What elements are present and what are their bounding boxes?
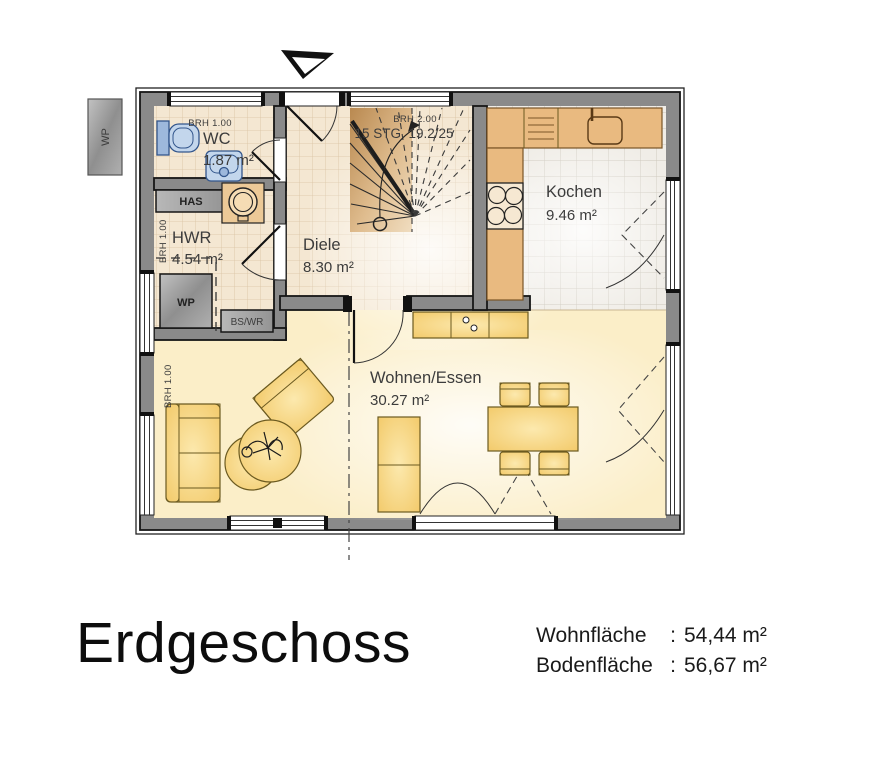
kochen-label: Kochen xyxy=(546,183,602,201)
stairs-label: 15 STG. 19.2/25 xyxy=(354,126,453,141)
hwr-label: HWR xyxy=(172,229,211,247)
window-wohnen-left xyxy=(140,412,154,515)
floorplan-page: WC 1.87 m² BRH 1.00 HWR 4.54 m² BRH 1.00… xyxy=(0,0,869,759)
wc-label: WC xyxy=(203,130,231,148)
cooktop xyxy=(487,183,523,229)
stairs-window-note: BRH 2.00 xyxy=(393,114,437,125)
hwr-area: 4.54 m² xyxy=(172,251,223,268)
has-label: HAS xyxy=(179,196,202,208)
stat-value: 56,67 m² xyxy=(684,651,767,681)
floor-plan-svg: WC 1.87 m² BRH 1.00 HWR 4.54 m² BRH 1.00… xyxy=(0,0,869,596)
dining-chair xyxy=(500,383,530,406)
heat-pump-indoor-label: WP xyxy=(177,297,195,309)
kochen-highlight xyxy=(500,150,666,310)
shelf xyxy=(378,417,420,512)
wohnen-window-note: BRH 1.00 xyxy=(163,364,174,408)
stat-separator: : xyxy=(662,621,684,651)
floor-title: Erdgeschoss xyxy=(76,610,411,676)
diele-area: 8.30 m² xyxy=(303,259,354,276)
window-stairs-top xyxy=(347,92,453,106)
stat-label: Bodenfläche xyxy=(536,651,662,681)
stat-value: 54,44 m² xyxy=(684,621,767,651)
wc-area: 1.87 m² xyxy=(203,152,254,169)
washing-machine xyxy=(222,183,264,223)
stat-label: Wohnfläche xyxy=(536,621,662,651)
wohnen-label: Wohnen/Essen xyxy=(370,369,482,387)
wc-window-note: BRH 1.00 xyxy=(188,118,232,129)
wohnen-area: 30.27 m² xyxy=(370,392,429,409)
window-hwr-left xyxy=(140,270,154,356)
bswr-label: BS/WR xyxy=(231,317,264,328)
sofa xyxy=(166,404,220,502)
hwr-window-note: BRH 1.00 xyxy=(158,219,169,263)
sideboard xyxy=(413,312,528,338)
stat-separator: : xyxy=(662,651,684,681)
window-wohnen-bottom xyxy=(227,516,328,530)
dining-chair xyxy=(539,452,569,475)
diele-label: Diele xyxy=(303,236,341,254)
dining-chair xyxy=(500,452,530,475)
area-stats: Wohnfläche : 54,44 m² Bodenfläche : 56,6… xyxy=(536,621,767,681)
stats-bodenflaeche: Bodenfläche : 56,67 m² xyxy=(536,651,767,681)
heat-pump-outdoor-label: WP xyxy=(100,128,112,146)
dining-table xyxy=(488,407,578,451)
dining-chair xyxy=(539,383,569,406)
window-wc-top xyxy=(167,92,265,106)
stats-wohnflaeche: Wohnfläche : 54,44 m² xyxy=(536,621,767,651)
entrance-arrow-icon xyxy=(281,50,334,79)
kochen-area: 9.46 m² xyxy=(546,207,597,224)
wohnen-highlight xyxy=(280,330,660,520)
